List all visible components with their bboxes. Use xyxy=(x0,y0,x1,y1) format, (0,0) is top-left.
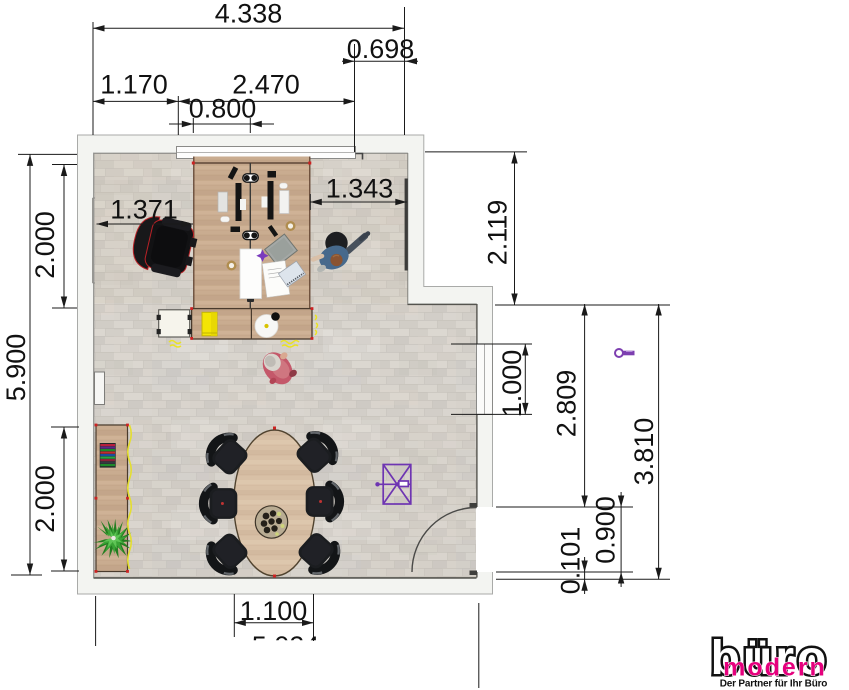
svg-text:0.101: 0.101 xyxy=(556,527,586,595)
svg-text:2.000: 2.000 xyxy=(30,211,60,279)
svg-text:1.100: 1.100 xyxy=(240,596,308,626)
svg-text:0.800: 0.800 xyxy=(189,94,257,124)
svg-text:5.900: 5.900 xyxy=(1,334,31,402)
svg-text:Der Partner für Ihr Büro: Der Partner für Ihr Büro xyxy=(720,679,828,690)
svg-text:0.900: 0.900 xyxy=(591,496,621,564)
svg-text:1.343: 1.343 xyxy=(326,174,394,204)
svg-text:4.338: 4.338 xyxy=(215,0,283,28)
svg-text:1.371: 1.371 xyxy=(110,195,178,225)
svg-text:1.000: 1.000 xyxy=(497,350,527,418)
svg-text:modern: modern xyxy=(723,654,827,682)
svg-text:2.809: 2.809 xyxy=(552,370,582,438)
svg-text:2.000: 2.000 xyxy=(30,465,60,533)
svg-text:2.119: 2.119 xyxy=(483,200,513,266)
svg-text:1.170: 1.170 xyxy=(100,70,168,100)
svg-text:0.698: 0.698 xyxy=(347,34,415,64)
svg-text:3.810: 3.810 xyxy=(629,418,659,486)
